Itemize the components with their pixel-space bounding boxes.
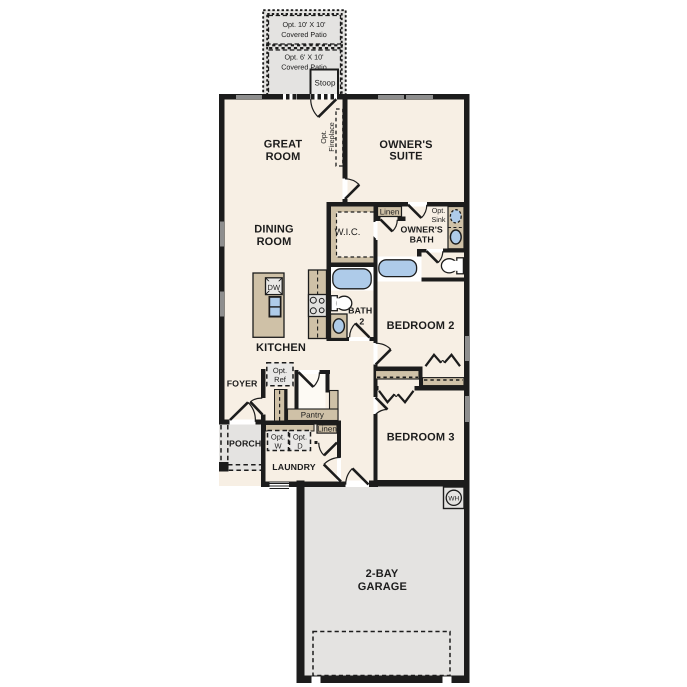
svg-text:BATH: BATH bbox=[348, 305, 372, 315]
svg-text:Opt.: Opt. bbox=[273, 366, 287, 375]
svg-text:D: D bbox=[297, 442, 303, 451]
svg-text:OWNER'S: OWNER'S bbox=[401, 225, 443, 235]
svg-text:W: W bbox=[274, 442, 282, 451]
svg-text:Covered Patio: Covered Patio bbox=[281, 30, 327, 39]
svg-text:ROOM: ROOM bbox=[257, 236, 292, 248]
svg-text:Opt.: Opt. bbox=[293, 433, 307, 442]
svg-text:Opt. 6' X 10': Opt. 6' X 10' bbox=[284, 53, 324, 62]
svg-text:ROOM: ROOM bbox=[266, 151, 301, 163]
svg-text:Pantry: Pantry bbox=[301, 411, 324, 420]
svg-text:Stoop: Stoop bbox=[315, 79, 336, 88]
svg-text:PORCH: PORCH bbox=[229, 438, 261, 448]
svg-text:FOYER: FOYER bbox=[227, 378, 258, 388]
svg-text:WH: WH bbox=[448, 495, 459, 502]
svg-text:KITCHEN: KITCHEN bbox=[256, 342, 306, 354]
svg-text:DW: DW bbox=[268, 283, 281, 292]
svg-text:Ref: Ref bbox=[274, 375, 287, 384]
svg-text:Linen: Linen bbox=[380, 207, 400, 216]
svg-text:Opt.: Opt. bbox=[432, 206, 446, 215]
svg-text:Linen: Linen bbox=[317, 425, 337, 434]
svg-text:Opt.: Opt. bbox=[271, 433, 285, 442]
svg-text:BEDROOM 2: BEDROOM 2 bbox=[387, 320, 455, 332]
svg-text:LAUNDRY: LAUNDRY bbox=[272, 462, 315, 472]
svg-text:BATH: BATH bbox=[410, 234, 434, 244]
svg-text:2: 2 bbox=[359, 316, 364, 326]
svg-text:Opt. 10' X 10': Opt. 10' X 10' bbox=[282, 20, 326, 29]
svg-text:SUITE: SUITE bbox=[389, 151, 422, 163]
svg-text:2-BAY: 2-BAY bbox=[366, 568, 399, 580]
svg-text:OWNER'S: OWNER'S bbox=[379, 139, 432, 151]
svg-text:W.I.C.: W.I.C. bbox=[335, 227, 361, 238]
svg-text:GARAGE: GARAGE bbox=[358, 581, 407, 593]
svg-text:BEDROOM 3: BEDROOM 3 bbox=[387, 431, 455, 443]
svg-text:Fireplace: Fireplace bbox=[327, 122, 336, 152]
svg-text:Sink: Sink bbox=[432, 215, 446, 224]
svg-text:GREAT: GREAT bbox=[264, 139, 303, 151]
svg-text:DINING: DINING bbox=[254, 223, 293, 235]
